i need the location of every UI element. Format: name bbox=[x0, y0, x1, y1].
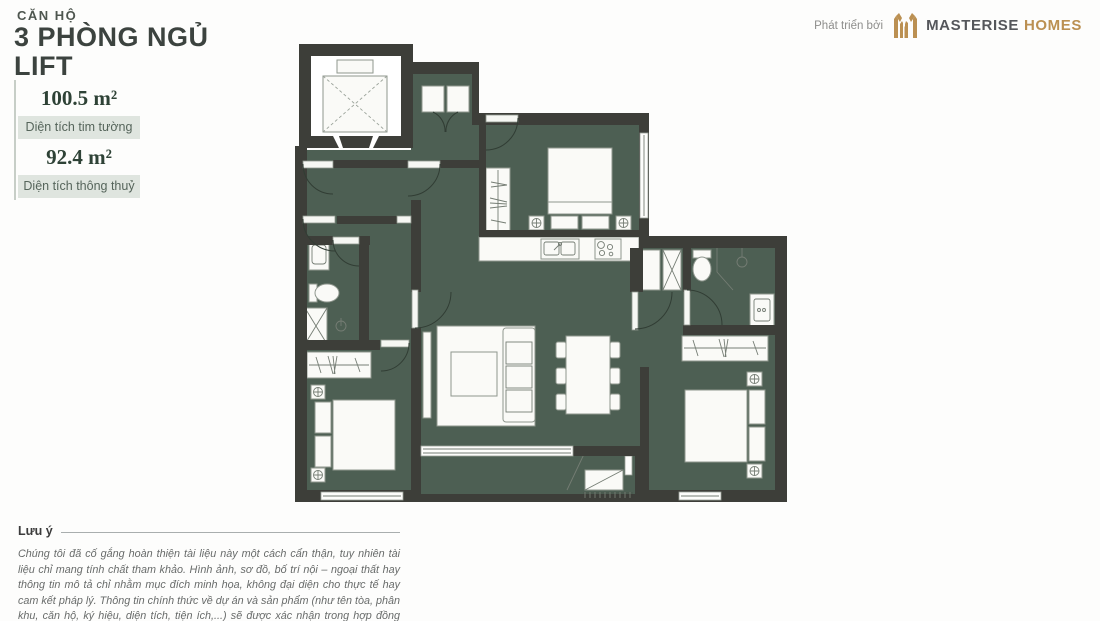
page-title-line2: LIFT bbox=[14, 52, 284, 81]
utility-shaft-kitchen bbox=[663, 250, 681, 290]
divider-line bbox=[14, 80, 16, 200]
area-value-gross: 100.5 m² bbox=[18, 80, 140, 116]
floor-plan bbox=[295, 40, 795, 515]
note-section: Lưu ý Chúng tôi đã cố gắng hoàn thiện tà… bbox=[18, 524, 400, 621]
area-stats: 100.5 m² Diện tích tim tường 92.4 m² Diệ… bbox=[18, 80, 140, 198]
bedroom-master bbox=[682, 336, 768, 478]
developer-prefix-label: Phát triển bởi bbox=[814, 20, 883, 32]
area-label-net: Diện tích thông thuỷ bbox=[18, 175, 140, 198]
page-title-line1: 3 PHÒNG NGỦ bbox=[14, 23, 284, 52]
dining-table bbox=[556, 336, 620, 414]
note-rule-line bbox=[61, 532, 400, 533]
lift-shaft bbox=[299, 44, 413, 148]
masterise-monogram-icon bbox=[893, 12, 918, 39]
note-label: Lưu ý bbox=[18, 524, 53, 538]
unit-type-label: CĂN HỘ bbox=[17, 8, 284, 23]
disclaimer-text: Chúng tôi đã cố gắng hoàn thiện tài liệu… bbox=[18, 547, 400, 621]
area-label-gross: Diện tích tim tường bbox=[18, 116, 140, 139]
living-room bbox=[423, 326, 535, 426]
brand-name-secondary: HOMES bbox=[1024, 17, 1082, 34]
info-panel: CĂN HỘ 3 PHÒNG NGỦ LIFT 100.5 m² Diện tí… bbox=[14, 8, 284, 81]
brand-name-primary: MASTERISE bbox=[926, 17, 1019, 34]
floorplan-sheet: CĂN HỘ 3 PHÒNG NGỦ LIFT 100.5 m² Diện tí… bbox=[0, 0, 1100, 621]
area-value-net: 92.4 m² bbox=[18, 139, 140, 175]
brand-name: MASTERISEHOMES bbox=[926, 17, 1082, 34]
developer-branding: Phát triển bởi MASTERISEHOMES bbox=[814, 12, 1082, 39]
